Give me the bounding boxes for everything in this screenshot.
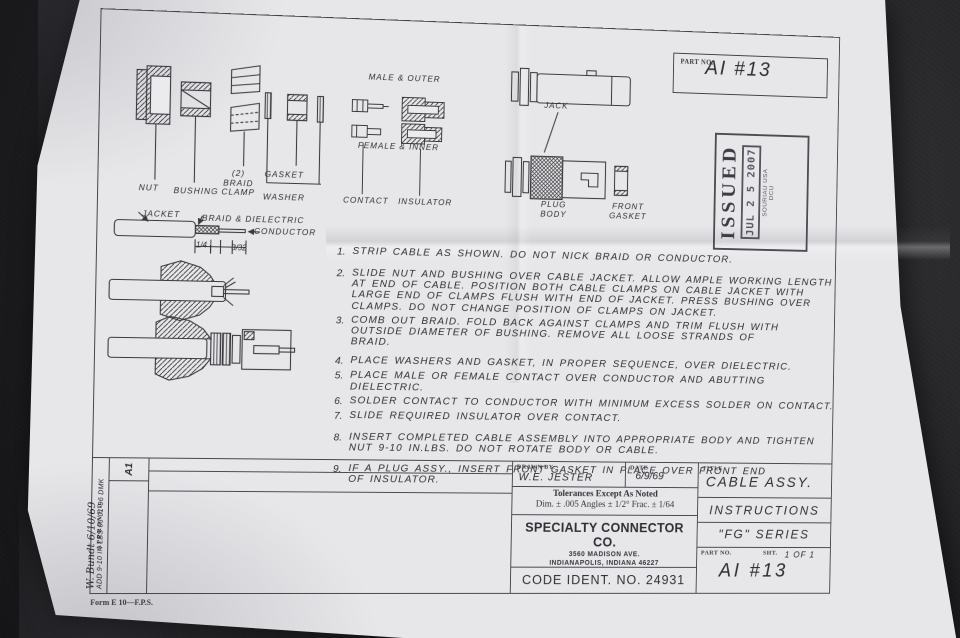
plug-body-label: PLUG BODY [527,200,580,220]
male-contact-drawing [352,100,389,113]
gasket-drawing [286,94,307,166]
sht-label: SHT. [763,550,778,557]
step-number: 1. [337,246,353,258]
step-number: 7. [334,410,350,422]
insulator-label: INSULATOR [391,197,460,208]
revision-cell: A1 [109,458,148,481]
drawn-by-label: DRAWN BY: [517,464,556,471]
female-contact-drawing [352,125,381,138]
instruction-list: 1. STRIP CABLE AS SHOWN. DO NOT NICK BRA… [333,243,840,489]
title-row: TITLE CABLE ASSY. [698,463,831,498]
part-no-row: PART NO. SHT. 1 OF 1 AI #13 [697,548,830,593]
revision-table [147,459,513,594]
front-gasket-drawing [614,166,628,195]
approval-note: ADD 9-10 IN LBS 03-01-96 DMK [96,485,105,589]
drawing-frame: PART NO. AI #13 ISSUED JUL 2 5 2007 SOUR… [89,8,840,594]
revision-row-line [149,470,512,474]
issued-word: ISSUED [717,137,742,247]
step-number: 2. [336,267,352,311]
part-no-value: AI #13 [705,57,772,82]
tolerances-title: Tolerances Except As Noted [512,489,697,500]
step-text: INSERT COMPLETED CABLE ASSEMBLY INTO APP… [349,432,815,458]
title-label: TITLE [702,465,723,472]
dimension-3-32: 3/32 [231,243,246,252]
nut-drawing [135,65,171,180]
contact-label: CONTACT [336,195,396,206]
company-row: SPECIALTY CONNECTOR CO. 3560 MADISON AVE… [511,515,697,568]
instruction-step-3: 3. COMB OUT BRAID. FOLD BACK AGAINST CLA… [335,314,838,355]
title-line-2: INSTRUCTIONS [698,503,831,518]
step-text: STRIP CABLE AS SHOWN. DO NOT NICK BRAID … [352,246,733,266]
instruction-step-8: 8. INSERT COMPLETED CABLE ASSEMBLY INTO … [333,431,836,458]
company-name: SPECIALTY CONNECTOR CO. [512,520,697,550]
connector-bodies-drawing [502,58,673,223]
strip-figure-3 [107,315,295,382]
step-text: SLIDE REQUIRED INSULATOR OVER CONTACT. [349,410,621,425]
step-number: 8. [333,431,349,453]
step-number: 3. [335,314,351,347]
braid-clamp-drawing [230,65,260,167]
issued-stamp: ISSUED JUL 2 5 2007 SOURIAU USA DCU [713,133,810,252]
date-value: 6/9/69 [635,470,663,482]
title-row-2: INSTRUCTIONS [698,498,831,524]
drawn-by-value: W.E. JESTER [518,471,593,483]
plug-body-drawing [505,155,606,200]
nut-label: NUT [131,183,167,193]
approval-signature-rotated: W. Bundt 6/10/69 ADD 9-10 IN LBS 03-01-9… [78,485,114,589]
strip-figure-2 [109,259,250,321]
gasket-label: GASKET [259,170,310,181]
drawn-by-row: DRAWN BY: W.E. JESTER DATE 6/9/69 [513,462,698,488]
part-no-value-bottom: AI #13 [719,560,788,582]
issued-stamp-inner: ISSUED JUL 2 5 2007 SOURIAU USA DCU [717,137,806,248]
washer-label: WASHER [256,192,312,203]
drawn-by-cell: DRAWN BY: W.E. JESTER [513,462,627,487]
issued-date: JUL 2 5 2007 [740,145,761,239]
part-no-label-bottom: PART NO. [701,550,732,557]
title-block-center: DRAWN BY: W.E. JESTER DATE 6/9/69 Tolera… [511,462,699,593]
step-number: 4. [335,355,351,367]
date-cell: DATE 6/9/69 [626,463,698,487]
company-address-1: 3560 MADISON AVE. [511,551,696,558]
title-line-1: CABLE ASSY. [706,474,813,491]
tolerances-row: Tolerances Except As Noted Dim. ± .005 A… [512,487,697,517]
form-number: Form E 10—F.P.S. [90,598,153,607]
dimension-quarter: 1/4 [196,240,207,249]
jack-label: JACK [533,101,580,112]
revision-row-line [149,490,512,493]
insulator-leader [420,149,421,196]
signature-column: A1 W. Bundt 6/10/69 ADD 9-10 IN LBS 03-0… [107,458,149,593]
step-text: SLIDE NUT AND BUSHING OVER CABLE JACKET.… [351,268,832,321]
title-block-right: TITLE CABLE ASSY. INSTRUCTIONS "FG" SERI… [697,463,832,593]
title-line-3: "FG" SERIES [697,527,830,542]
step-number: 5. [334,370,350,392]
instruction-step-7: 7. SLIDE REQUIRED INSULATOR OVER CONTACT… [334,410,837,428]
issued-org: SOURIAU USA DCU [761,138,776,247]
revision-value: A1 [123,463,134,476]
front-gasket-label: FRONT GASKET [598,202,658,222]
bushing-drawing [179,82,210,183]
jacket-label: JACKET [135,209,187,220]
title-block: APPROVED A1 W. Bundt 6/10/69 ADD 9-10 IN… [90,457,831,593]
jack-leader [544,112,558,153]
part-number-box: PART NO. AI #13 [673,53,828,99]
company-address-2: INDIANAPOLIS, INDIANA 46227 [511,560,696,567]
contact-leader [362,143,363,194]
conductor-label: CONDUCTOR [247,227,323,238]
sheet-value: 1 OF 1 [785,550,815,560]
step-text: COMB OUT BRAID. FOLD BACK AGAINST CLAMPS… [351,315,779,355]
outer-insulator-drawing [402,97,444,122]
tolerances-detail: Dim. ± .005 Angles ± 1/2° Frac. ± 1/64 [512,499,697,510]
code-ident: CODE IDENT. NO. 24931 [511,568,696,593]
contact-insulator-drawing [343,68,479,209]
title-row-3: "FG" SERIES [697,523,830,548]
cable-strip-drawing [107,207,369,400]
step-number: 6. [334,395,350,407]
instruction-step-2: 2. SLIDE NUT AND BUSHING OVER CABLE JACK… [336,267,839,321]
photographed-drawing-sheet: PART NO. AI #13 ISSUED JUL 2 5 2007 SOUR… [0,0,960,638]
